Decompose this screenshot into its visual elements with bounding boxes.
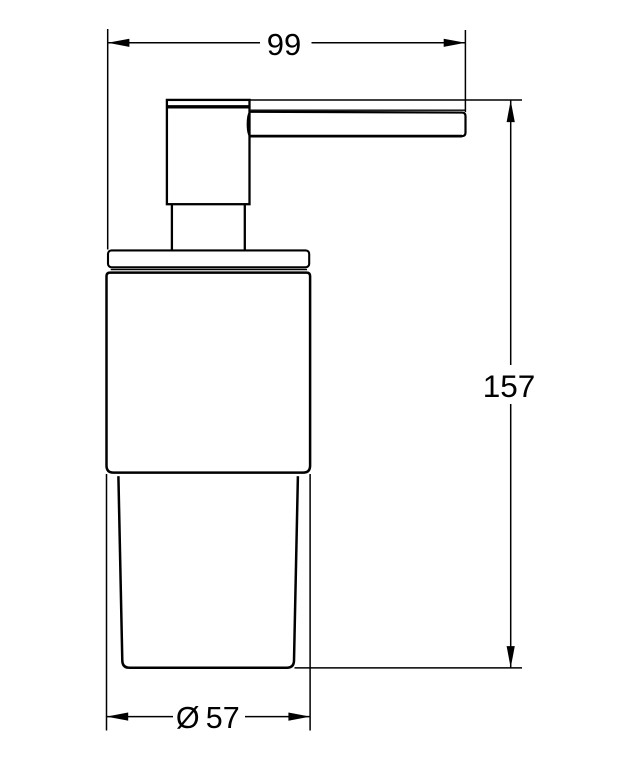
svg-text:Ø 57: Ø 57 (176, 701, 240, 735)
svg-text:157: 157 (483, 368, 536, 404)
svg-text:99: 99 (267, 27, 301, 62)
